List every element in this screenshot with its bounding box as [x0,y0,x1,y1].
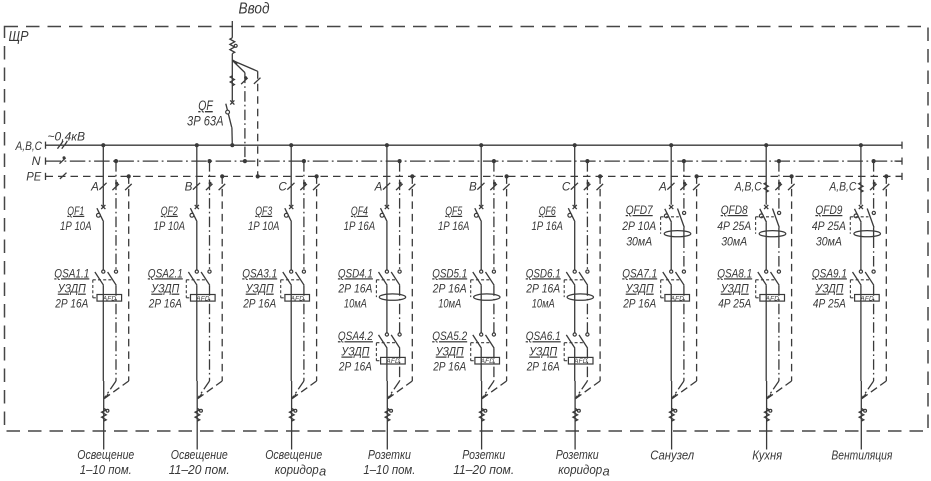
svg-text:РЕ: РЕ [26,170,42,184]
svg-text:QSD5.1: QSD5.1 [432,266,467,280]
svg-text:QF3: QF3 [255,204,272,218]
svg-text:N: N [32,154,41,168]
svg-text:3Р 63А: 3Р 63А [187,113,224,128]
svg-text:Ввод: Ввод [239,1,270,18]
svg-text:QSA3.1: QSA3.1 [242,266,277,280]
svg-text:А: А [374,181,383,194]
svg-text:QF: QF [198,98,214,113]
svg-text:УЗДП: УЗДП [815,282,844,296]
svg-text:2Р 16А: 2Р 16А [525,282,560,296]
svg-text:Розетки: Розетки [556,447,599,462]
svg-text:QF4: QF4 [351,204,368,218]
svg-text:Освещение: Освещение [265,447,322,462]
svg-text:Санузел: Санузел [650,448,695,463]
svg-text:QSA2.1: QSA2.1 [148,266,183,280]
svg-text:С: С [562,181,571,194]
svg-text:Розетки: Розетки [368,447,411,462]
svg-text:QFD9: QFD9 [815,203,842,217]
svg-text:2Р 16А: 2Р 16А [432,360,466,374]
svg-text:В: В [469,181,477,194]
svg-text:QF2: QF2 [161,204,178,218]
svg-text:1Р 16А: 1Р 16А [438,219,470,233]
svg-text:УЗДП: УЗДП [150,282,179,296]
svg-text:4Р 25А: 4Р 25А [717,219,751,233]
svg-text:2Р 16А: 2Р 16А [148,297,182,311]
svg-text:УЗДП: УЗДП [341,345,370,359]
svg-text:2Р 16А: 2Р 16А [54,297,88,311]
svg-text:2Р 16А: 2Р 16А [526,360,560,374]
svg-text:1Р 10А: 1Р 10А [248,219,280,233]
svg-text:QSA1.1: QSA1.1 [54,266,89,280]
svg-text:QSA8.1: QSA8.1 [717,266,752,280]
svg-text:10мА: 10мА [532,297,555,311]
svg-text:2Р 16А: 2Р 16А [432,282,467,296]
svg-text:11–20 пом.: 11–20 пом. [453,462,514,477]
svg-text:С: С [278,181,287,194]
svg-text:QSA6.1: QSA6.1 [526,329,561,343]
svg-text:УЗДП: УЗДП [245,282,274,296]
svg-text:Освещение: Освещение [171,447,228,462]
svg-text:А,В,С: А,В,С [15,139,42,153]
svg-text:QFD7: QFD7 [626,203,654,217]
svg-text:QFD8: QFD8 [721,203,748,217]
svg-text:QF1: QF1 [67,204,84,218]
svg-text:2Р 16А: 2Р 16А [338,282,373,296]
svg-text:QSD4.1: QSD4.1 [338,266,373,280]
svg-text:коридор: коридор [275,462,319,477]
svg-text:А: А [90,181,99,194]
svg-text:QSA7.1: QSA7.1 [622,266,657,280]
svg-text:коридор: коридор [558,462,602,477]
svg-text:4Р 25А: 4Р 25А [812,219,846,233]
svg-text:QSD6.1: QSD6.1 [526,266,561,280]
svg-text:1Р 16А: 1Р 16А [344,219,376,233]
svg-text:2Р 16А: 2Р 16А [622,297,656,311]
svg-text:~0,4кВ: ~0,4кВ [48,130,86,144]
svg-text:Освещение: Освещение [77,447,134,462]
svg-text:а: а [603,464,610,479]
svg-text:УЗДП: УЗДП [720,282,749,296]
svg-text:УЗДП: УЗДП [528,345,557,359]
svg-text:1Р 16А: 1Р 16А [531,219,563,233]
svg-text:4Р 25А: 4Р 25А [718,297,751,311]
svg-text:10мА: 10мА [344,297,367,311]
svg-text:QF5: QF5 [445,204,462,218]
svg-text:УЗДП: УЗДП [435,345,464,359]
svg-text:Вентиляция: Вентиляция [831,448,892,463]
svg-text:QSA4.2: QSA4.2 [338,329,373,343]
svg-text:2Р 16А: 2Р 16А [338,360,372,374]
svg-text:30мА: 30мА [626,234,652,248]
svg-text:QF6: QF6 [539,204,556,218]
svg-text:30мА: 30мА [721,234,747,248]
svg-text:4Р 25А: 4Р 25А [813,297,846,311]
svg-text:Розетки: Розетки [462,447,505,462]
svg-text:Кухня: Кухня [752,448,782,463]
svg-text:2Р 10А: 2Р 10А [621,219,656,233]
svg-text:30мА: 30мА [816,234,842,248]
svg-text:1–10 пом.: 1–10 пом. [363,462,415,477]
svg-text:1Р 10А: 1Р 10А [154,219,186,233]
svg-text:QSA9.1: QSA9.1 [812,266,847,280]
svg-text:1–10 пом.: 1–10 пом. [80,462,132,477]
svg-text:QSA5.2: QSA5.2 [432,329,467,343]
svg-text:1Р 10А: 1Р 10А [60,219,92,233]
svg-text:2Р 16А: 2Р 16А [242,297,276,311]
svg-text:УЗДП: УЗДП [625,282,654,296]
svg-text:А: А [658,181,667,194]
svg-text:В: В [185,181,193,194]
svg-text:11–20 пом.: 11–20 пом. [169,462,230,477]
svg-text:ЩР: ЩР [9,29,29,45]
svg-text:УЗДП: УЗДП [57,282,86,296]
svg-text:А,В,С: А,В,С [734,181,762,194]
svg-text:а: а [319,464,326,479]
svg-text:10мА: 10мА [438,297,461,311]
svg-text:А,В,С: А,В,С [829,181,857,194]
